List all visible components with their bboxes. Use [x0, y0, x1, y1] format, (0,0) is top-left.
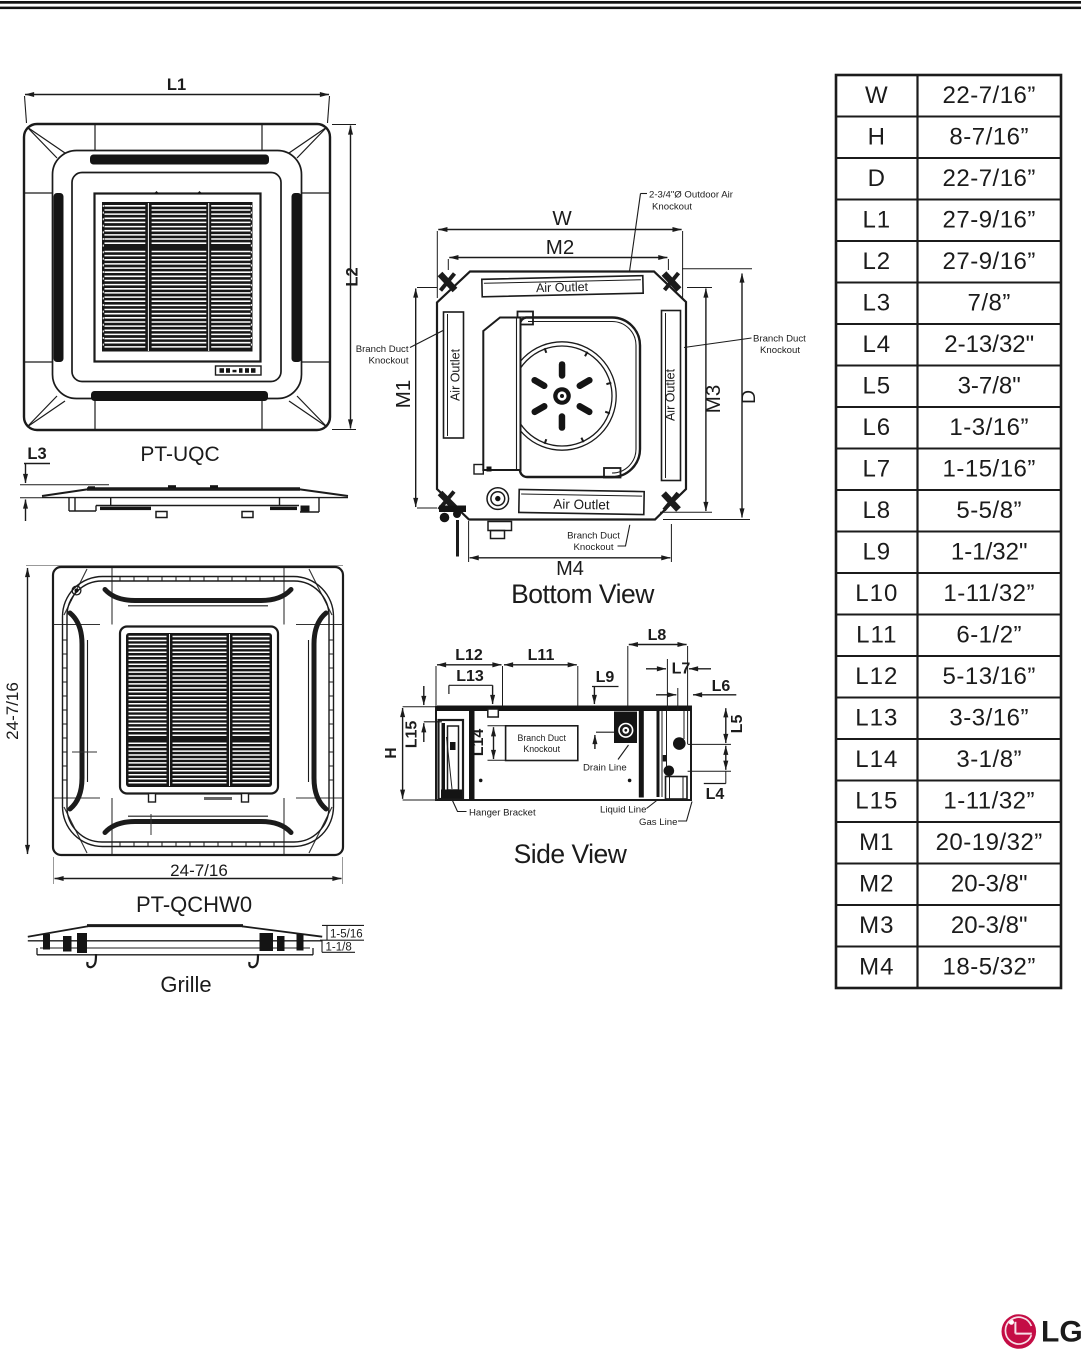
svg-text:M1: M1	[859, 829, 894, 856]
svg-text:W: W	[865, 82, 889, 109]
svg-text:L6: L6	[862, 414, 891, 441]
svg-text:18-5/32”: 18-5/32”	[943, 954, 1036, 981]
svg-text:1-11/32”: 1-11/32”	[943, 580, 1035, 607]
svg-text:L13: L13	[456, 668, 484, 685]
svg-text:L11: L11	[856, 622, 897, 649]
svg-text:5-13/16”: 5-13/16”	[943, 663, 1036, 690]
svg-text:22-7/16”: 22-7/16”	[943, 82, 1036, 109]
svg-text:D: D	[738, 390, 760, 404]
svg-text:L1: L1	[167, 76, 186, 94]
svg-text:M2: M2	[859, 871, 894, 898]
svg-text:1-1/32": 1-1/32"	[951, 539, 1028, 566]
svg-text:Air Outlet: Air Outlet	[553, 497, 610, 513]
svg-text:L11: L11	[528, 647, 555, 664]
svg-text:27-9/16”: 27-9/16”	[943, 207, 1036, 234]
svg-text:L12: L12	[855, 663, 898, 690]
svg-text:L7: L7	[862, 456, 891, 483]
svg-text:20-19/32”: 20-19/32”	[936, 829, 1043, 856]
svg-text:H: H	[868, 124, 886, 151]
svg-text:7/8”: 7/8”	[968, 290, 1011, 317]
svg-text:M1: M1	[392, 380, 415, 408]
svg-text:M4: M4	[556, 558, 584, 580]
svg-text:Branch Duct: Branch Duct	[753, 334, 806, 345]
svg-text:L4: L4	[706, 786, 725, 803]
svg-text:22-7/16”: 22-7/16”	[943, 165, 1036, 192]
svg-text:L14: L14	[855, 746, 898, 773]
svg-text:Knockout: Knockout	[368, 356, 408, 367]
svg-text:L8: L8	[862, 497, 891, 524]
svg-text:Side View: Side View	[514, 839, 628, 869]
svg-text:Branch Duct: Branch Duct	[567, 531, 620, 542]
svg-text:2-3/4"Ø Outdoor Air: 2-3/4"Ø Outdoor Air	[649, 190, 734, 201]
svg-text:6-1/2”: 6-1/2”	[956, 622, 1022, 649]
svg-text:L6: L6	[712, 678, 731, 695]
svg-text:M2: M2	[546, 236, 574, 259]
svg-text:3-1/8”: 3-1/8”	[956, 746, 1022, 773]
svg-text:L15: L15	[855, 788, 898, 815]
svg-text:20-3/8": 20-3/8"	[951, 912, 1028, 939]
svg-text:Air Outlet: Air Outlet	[664, 368, 678, 421]
svg-text:L3: L3	[27, 445, 46, 463]
svg-text:M4: M4	[859, 954, 894, 981]
svg-text:3-7/8": 3-7/8"	[958, 373, 1021, 400]
svg-text:Branch Duct: Branch Duct	[356, 344, 409, 355]
svg-text:Hanger Bracket: Hanger Bracket	[469, 808, 536, 819]
svg-text:L13: L13	[855, 705, 898, 732]
svg-text:PT-UQC: PT-UQC	[140, 443, 219, 466]
svg-text:D: D	[868, 165, 886, 192]
svg-text:2-13/32": 2-13/32"	[944, 331, 1034, 358]
svg-text:1-11/32”: 1-11/32”	[943, 788, 1035, 815]
svg-text:L9: L9	[596, 669, 615, 686]
svg-text:L8: L8	[648, 627, 667, 644]
svg-text:L9: L9	[862, 539, 891, 566]
svg-text:Branch Duct: Branch Duct	[517, 733, 566, 743]
svg-text:Air Outlet: Air Outlet	[449, 348, 463, 401]
svg-text:Knockout: Knockout	[573, 542, 613, 553]
svg-text:24-7/16: 24-7/16	[3, 682, 22, 740]
svg-text:L12: L12	[455, 647, 483, 664]
svg-text:Bottom View: Bottom View	[511, 579, 655, 609]
svg-text:24-7/16: 24-7/16	[170, 861, 228, 880]
svg-text:Knockout: Knockout	[760, 345, 800, 356]
svg-text:1-1/8: 1-1/8	[326, 942, 352, 954]
svg-text:L3: L3	[862, 290, 891, 317]
svg-text:Drain Line: Drain Line	[583, 763, 627, 774]
svg-text:L5: L5	[729, 715, 746, 734]
svg-text:L2: L2	[344, 267, 362, 286]
svg-text:L15: L15	[404, 721, 421, 749]
svg-text:5-5/8”: 5-5/8”	[956, 497, 1022, 524]
svg-text:L5: L5	[862, 373, 891, 400]
svg-text:W: W	[552, 207, 572, 230]
svg-text:L1: L1	[862, 207, 891, 234]
svg-text:M3: M3	[859, 912, 894, 939]
svg-text:L4: L4	[862, 331, 891, 358]
svg-text:Air Outlet: Air Outlet	[536, 280, 589, 295]
svg-text:Grille: Grille	[160, 972, 211, 997]
svg-text:Liquid Line: Liquid Line	[600, 805, 646, 816]
svg-text:LG: LG	[1041, 1316, 1081, 1349]
svg-text:1-5/16: 1-5/16	[330, 929, 363, 941]
svg-text:Gas Line: Gas Line	[639, 817, 677, 828]
svg-text:Knockout: Knockout	[652, 202, 692, 213]
svg-text:M3: M3	[702, 385, 725, 413]
svg-text:3-3/16”: 3-3/16”	[949, 705, 1029, 732]
svg-text:L10: L10	[855, 580, 898, 607]
svg-text:L2: L2	[862, 248, 891, 275]
svg-text:Knockout: Knockout	[523, 744, 560, 754]
svg-text:27-9/16”: 27-9/16”	[943, 248, 1036, 275]
svg-text:8-7/16”: 8-7/16”	[949, 124, 1029, 151]
svg-text:20-3/8": 20-3/8"	[951, 871, 1028, 898]
svg-text:1-3/16”: 1-3/16”	[949, 414, 1029, 441]
svg-text:1-15/16”: 1-15/16”	[943, 456, 1036, 483]
svg-text:L7: L7	[672, 661, 691, 678]
svg-text:H: H	[383, 747, 400, 758]
svg-text:PT-QCHW0: PT-QCHW0	[136, 892, 252, 917]
